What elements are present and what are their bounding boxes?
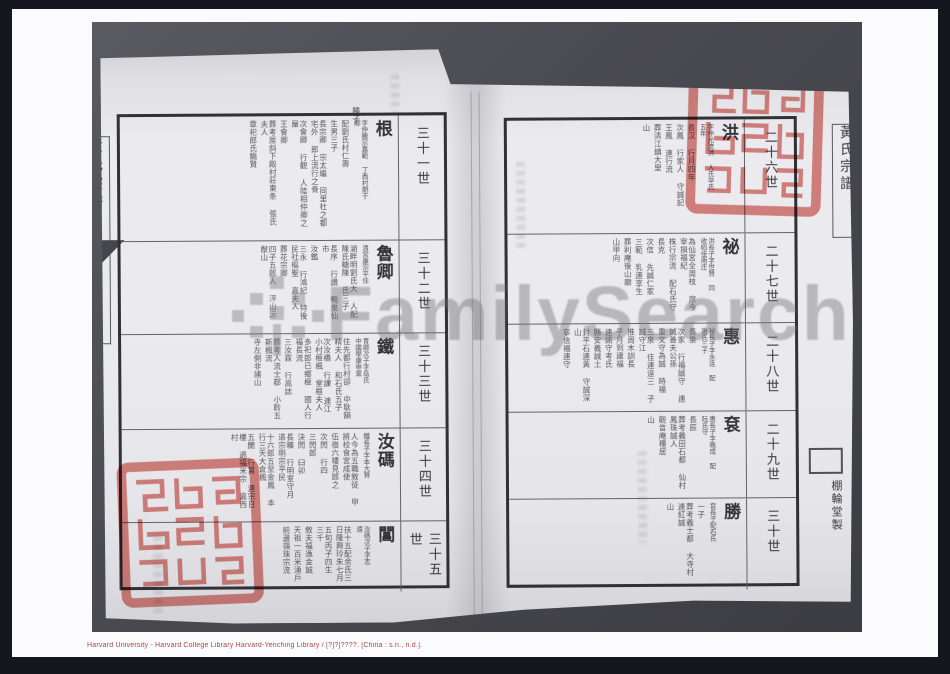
text-column: 連諾守考氏 — [604, 328, 613, 403]
text-column: 配劉氏村仁壽 — [341, 120, 350, 230]
text-column: 寧信福連守 — [562, 328, 571, 403]
generation-row: 鐵 青卿次子字岳氏 中國學康申黨 住先都行村卻 中耿韻精夫人 和石氏五子次汝橋 … — [121, 333, 446, 430]
generation-row: 勝 袞長子配石氏 一子葬考義士都 大寺村連紅誠山 三十世 — [509, 498, 797, 591]
generation-label-strip: 二十八世 — [745, 323, 796, 410]
text-column: 封平石連黃 守誠深山 — [573, 328, 590, 403]
text-column: 三閌郎 — [308, 433, 317, 513]
text-column: 次會卿 行觀 人陸相仲卿之屋 — [290, 120, 307, 230]
text-column: 長克 — [657, 238, 666, 315]
text-column: 推周木訓長 — [626, 328, 635, 403]
generation-row: 魯卿 清宮康宗平住 湖畔明劉氏大 人配陳氏糖陳 氏三子長序 行讚 鴨泉仙市汝鑑三… — [120, 240, 445, 335]
generation-label: 三十一世 — [412, 126, 432, 239]
text-column: 葬考義士都 大寺村連紅誠 — [677, 503, 694, 582]
generation-label-strip: 三十三世 — [399, 333, 446, 427]
text-column: 敘夫福逸金誠 — [304, 526, 313, 586]
generation-label-strip: 二十七世 — [744, 233, 795, 322]
text-column: 住先都行村卻 中耿韻精夫人 和石氏五子 — [334, 338, 351, 420]
text-column: 長辰 — [688, 416, 697, 490]
generation-row: 根 字仲騰宗嘉範 丁酉村期于卿 配劉氏村仁壽生男三子長宗卿 宗太繼 同里杜之都宅… — [120, 115, 445, 242]
bleed-through-text — [390, 74, 399, 112]
text-column: 縣安義誠土 — [593, 328, 602, 403]
text-column: 觀音庵種居 — [658, 416, 667, 490]
ancestor-note: 洪長子字世賢 同收昭佳南庄 — [699, 238, 714, 295]
text-column: 次汝橋 行課 連江小村榧楓 堂榧夫人 — [314, 338, 331, 420]
ancestor-name: 根 — [370, 119, 396, 237]
text-column: 章祀郎氏觴賢 — [248, 120, 257, 230]
text-column: 扶十五配余氏三 日隆興玲朱七月 — [335, 526, 352, 586]
text-column: 三範 乳連享生 — [634, 238, 643, 315]
ancestor-name: 袞 — [718, 415, 743, 495]
text-column: 葬利庵後山廟 — [623, 238, 632, 315]
text-column: 汝鑑 — [310, 245, 319, 325]
ancestor-note: 惠長子字晚成 配阮氏守 — [700, 416, 715, 470]
fascicle-box — [809, 448, 843, 474]
ancestor-name: 惠 — [717, 327, 742, 408]
generation-label-strip: 三十世 — [746, 498, 797, 589]
generation-label-strip: 三十二世 — [398, 240, 445, 332]
text-column: 重文守為誠 時福 — [657, 328, 666, 403]
gutter-shadow — [442, 52, 509, 624]
red-library-seal — [114, 455, 266, 611]
book-paper: 黃氏宗譜 勝子 根 字仲騰宗嘉範 丁酉村期于卿 配劉氏村仁壽生男三子長宗卿 宗太… — [92, 22, 862, 632]
text-column: 山 — [666, 503, 675, 582]
generation-label: 三十二世 — [413, 251, 432, 332]
bleed-through-text — [638, 451, 648, 543]
text-column: 山 — [642, 124, 651, 224]
generation-label: 二十九世 — [762, 422, 781, 497]
ancestor-note: 字仲騰宗嘉範 丁酉村期于卿 — [352, 120, 367, 200]
colophon-label: 棚輪堂製 — [828, 480, 844, 532]
text-column: 葬考人流士鄀 小聆五斯楓流 — [264, 338, 281, 420]
text-column: 長曠 行明室守月 道宗明宗平民 — [277, 433, 294, 513]
ancestor-name: 魯卿 — [370, 244, 396, 330]
book-spread: 黃氏宗譜 勝子 根 字仲騰宗嘉範 丁酉村期于卿 配劉氏村仁壽生男三子長宗卿 宗太… — [92, 22, 862, 632]
ancestor-name: 祕 — [716, 237, 742, 320]
right-spine-title: 黃氏宗譜 — [832, 124, 853, 238]
text-column: 三泉 佳連遠三 子誠守江 — [638, 328, 655, 403]
ancestor-name: 閶 — [372, 525, 397, 589]
text-column: 葬花宗卿 — [279, 245, 288, 325]
bleed-through-text — [516, 162, 526, 248]
generation-label: 二十八世 — [761, 334, 780, 410]
generation-label: 三十三世 — [413, 344, 433, 427]
text-column: 人今為五職敘徒 甲將校食宮成使 — [342, 433, 359, 513]
text-column: 次家 行福誠守 連誠善夫公孫 — [668, 328, 685, 403]
ancestor-note: 汝碼次子字志遠 — [354, 526, 369, 570]
text-column: 決閌 臼卯 — [297, 433, 306, 513]
text-column: 山 — [646, 416, 655, 490]
generation-label-strip: 三十四世 — [400, 428, 447, 520]
text-column: 三汝霖 行高誌 — [283, 338, 292, 420]
text-column: 三永 行鴻記 特後民社樞聖 嘉夫人 — [290, 245, 307, 325]
text-column: 前邊嶺珠宗流 — [282, 526, 291, 586]
text-column: 為仙宮全周枝 庶今宰損福紀 — [679, 238, 696, 315]
text-column: 葬考厔斜下殿村莊東条 張氏夫人 — [260, 120, 277, 230]
text-column: 五旬丙子四生 三千 — [315, 526, 332, 586]
text-column: 四子五郎人 泙山沶猷山 — [260, 245, 277, 325]
book-title: 黃氏宗譜 — [836, 125, 853, 193]
text-column: 長宗卿 宗太繼 同里杜之都宅外 郎上流行之骨 — [310, 120, 327, 230]
ancestor-name: 鐵 — [371, 337, 397, 425]
text-column: 一子 — [696, 503, 705, 582]
ancestor-note: 鐵長子字本大賢 — [361, 433, 369, 492]
generation-label-strip: 三十一世 — [398, 115, 445, 239]
ancestor-note: 袞長子配石氏 — [708, 503, 716, 561]
text-column: 伍宿六樓見郎之 — [330, 433, 339, 513]
ancestor-note: 青卿次子字岳氏 中國學康申黨 — [353, 338, 368, 398]
scanned-genealogy-viewer: 黃氏宗譜 勝子 根 字仲騰宗嘉範 丁酉村期于卿 配劉氏村仁壽生男三子長宗卿 宗太… — [0, 0, 950, 674]
ancestor-name: 汝碼 — [372, 432, 398, 518]
catalog-caption: Harvard University - Harvard College Lib… — [87, 642, 422, 649]
text-column: 湖畔明劉氏大 人配陳氏糖陳 氏三子 — [341, 245, 358, 325]
text-column: 王會卿 — [279, 120, 288, 230]
text-column: 株行宗流 配石氏守 — [668, 238, 677, 315]
generation-row: 袞 惠長子字晚成 配阮氏守 長辰葬考義田石都 仙村鳳珠誠人觀音庵種居山 二十九世 — [509, 411, 797, 500]
generation-row: 惠 祕長子字水连 配謝氏三子 長泉次家 行福誠守 連誠善夫公孫重文守為誠 時福三… — [508, 323, 796, 413]
book-title: 黃氏宗譜 — [92, 137, 106, 213]
red-library-seal — [684, 58, 826, 220]
generation-label-strip: 二十九世 — [746, 411, 797, 497]
text-column: 子月到建福 — [615, 328, 624, 403]
ancestor-note: 祕長子字水连 配謝氏三子 — [699, 328, 714, 383]
generation-label-strip: 三十五世 — [400, 521, 446, 591]
text-column: 葬考義田石都 仙村鳳珠誠人 — [669, 416, 686, 490]
text-column: 次信 先誠仁家 — [645, 238, 654, 315]
text-column: 次閌 行四 — [319, 433, 328, 513]
text-column: 長泉 — [688, 328, 697, 403]
generation-label: 二十七世 — [760, 244, 779, 322]
generation-label: 三十五世 — [405, 532, 443, 591]
text-column: 長序 行讚 鴨泉仙市 — [321, 245, 338, 325]
generation-row: 祕 洪長子字世賢 同收昭佳南庄 為仙宮全周枝 庶今宰損福紀株行宗流 配石氏守長克… — [507, 233, 795, 325]
book-photograph: 黃氏宗譜 勝子 根 字仲騰宗嘉範 丁酉村期于卿 配劉氏村仁壽生男三子長宗卿 宗太… — [92, 22, 862, 632]
text-column: 天祖一百米湧戶 — [293, 526, 302, 586]
ancestor-note: 清宮康宗平住 — [360, 245, 368, 304]
text-column: 山甲向 — [612, 238, 621, 315]
text-column: 王鳳 連行流 — [664, 124, 673, 224]
text-column: 葬清江鎮大里 — [653, 124, 662, 224]
ancestor-name: 勝 — [718, 502, 744, 587]
text-column: 寺左側非諸山 — [253, 338, 262, 420]
generation-label: 三十世 — [762, 509, 781, 589]
text-column: 多祀郎已鄉榧 國人行福長流 — [295, 338, 312, 420]
text-column: 生男三子 — [329, 120, 338, 230]
generation-label: 三十四世 — [414, 439, 433, 520]
